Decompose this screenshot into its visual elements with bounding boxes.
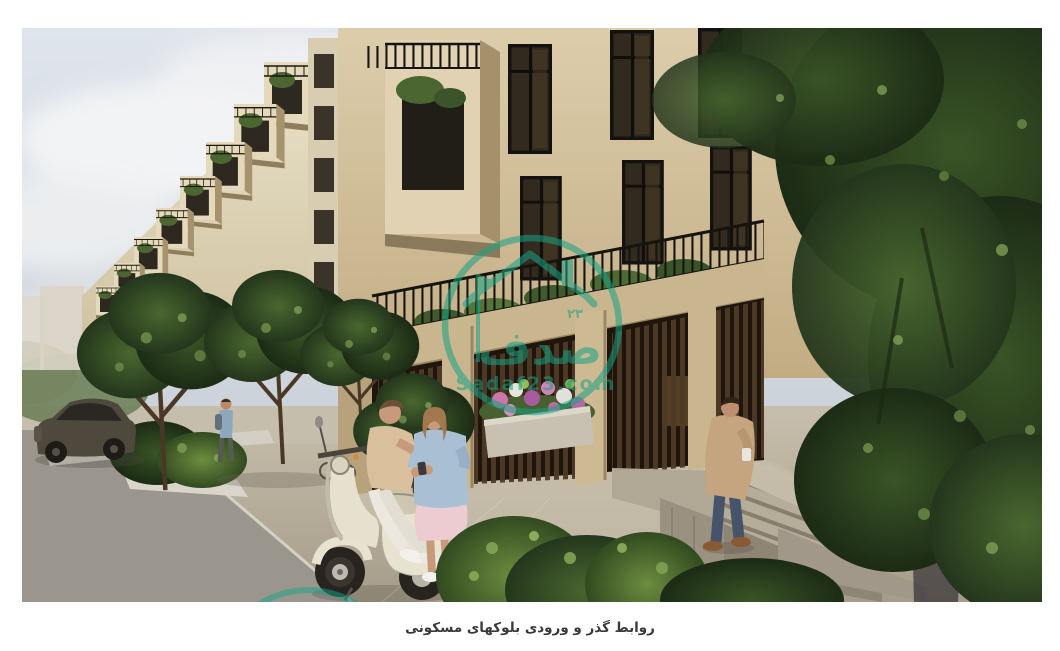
watermark-number: ۲۳ xyxy=(567,307,583,322)
watermark-brand: صدف xyxy=(478,321,602,375)
watermark-url: Sadaf23.com xyxy=(456,373,617,395)
figure-caption: روابط گذر و ورودی بلوکهای مسکونی xyxy=(0,620,1060,636)
page: صدف ۲۳ Sadaf23.com روابط گذر و ورودی بلو… xyxy=(0,0,1060,651)
box-balcony xyxy=(366,40,500,258)
architectural-rendering: صدف ۲۳ Sadaf23.com xyxy=(22,28,1042,602)
